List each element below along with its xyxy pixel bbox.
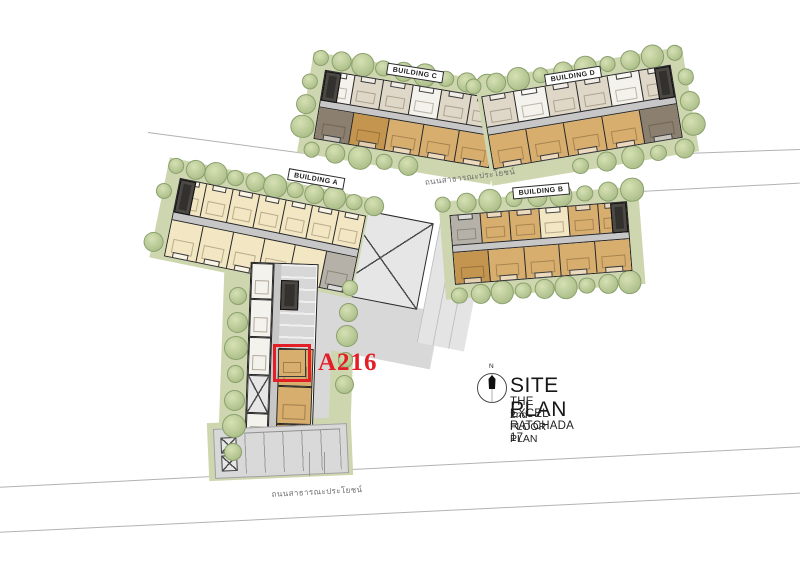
leader-line	[324, 452, 325, 474]
tree-icon	[553, 275, 578, 300]
tree-icon	[227, 365, 245, 383]
residential-unit	[567, 205, 599, 236]
tree-icon	[514, 281, 532, 299]
building-slab	[450, 201, 633, 285]
residential-unit	[594, 239, 632, 273]
residential-unit	[332, 211, 365, 248]
stair-unit	[246, 375, 269, 414]
tree-icon	[222, 414, 246, 438]
residential-unit	[489, 129, 531, 168]
building-b-group	[450, 201, 633, 285]
tree-icon	[490, 280, 515, 305]
tree-icon	[224, 390, 245, 411]
tree-icon	[336, 325, 358, 347]
parking-bays	[244, 428, 342, 473]
residential-unit	[639, 104, 682, 143]
residential-unit	[508, 209, 540, 240]
tree-icon	[578, 276, 596, 294]
tree-icon	[620, 177, 645, 202]
residential-unit	[418, 125, 458, 162]
stair-core	[610, 202, 628, 233]
wing-unit	[248, 337, 271, 376]
residential-unit	[563, 117, 606, 156]
tree-icon	[335, 375, 354, 394]
residential-unit	[479, 211, 511, 242]
wing-unit	[276, 386, 312, 425]
tree-icon	[534, 278, 556, 300]
residential-unit	[451, 214, 482, 245]
residential-unit	[538, 207, 570, 238]
unit-a216	[278, 349, 306, 377]
residential-unit	[558, 242, 596, 276]
floor-plan-subtitle: 2nd FLOOR PLAN	[510, 409, 546, 445]
lift-core	[280, 280, 299, 311]
wing-unit	[249, 299, 272, 338]
residential-unit	[383, 119, 423, 156]
unit-a216-label: A216	[318, 349, 378, 377]
tree-icon	[342, 280, 358, 296]
tree-icon	[229, 287, 247, 305]
tree-icon	[224, 443, 242, 461]
leader-line	[309, 452, 310, 476]
plan-graphics-layer	[0, 0, 800, 565]
road-edge-line	[0, 446, 800, 488]
tree-icon	[227, 312, 248, 333]
residential-unit	[453, 250, 490, 284]
road-edge-line	[148, 132, 312, 155]
wing-unit	[250, 263, 273, 300]
unit-a216-highlight-box	[273, 344, 311, 382]
residential-unit	[601, 110, 644, 149]
site-plan-canvas: BUILDING A BUILDING B BUILDING C BUILDIN…	[0, 0, 800, 565]
tree-icon	[598, 273, 620, 295]
residential-unit	[488, 247, 526, 281]
north-compass-icon	[474, 366, 510, 410]
residential-unit	[315, 107, 354, 144]
tree-icon	[470, 283, 492, 305]
residential-unit	[525, 123, 568, 162]
residential-unit	[349, 113, 389, 150]
road-edge-line	[621, 183, 800, 193]
road-edge-line	[0, 493, 800, 533]
tree-icon	[339, 303, 358, 322]
tree-icon	[617, 270, 642, 295]
residential-unit	[523, 244, 561, 278]
